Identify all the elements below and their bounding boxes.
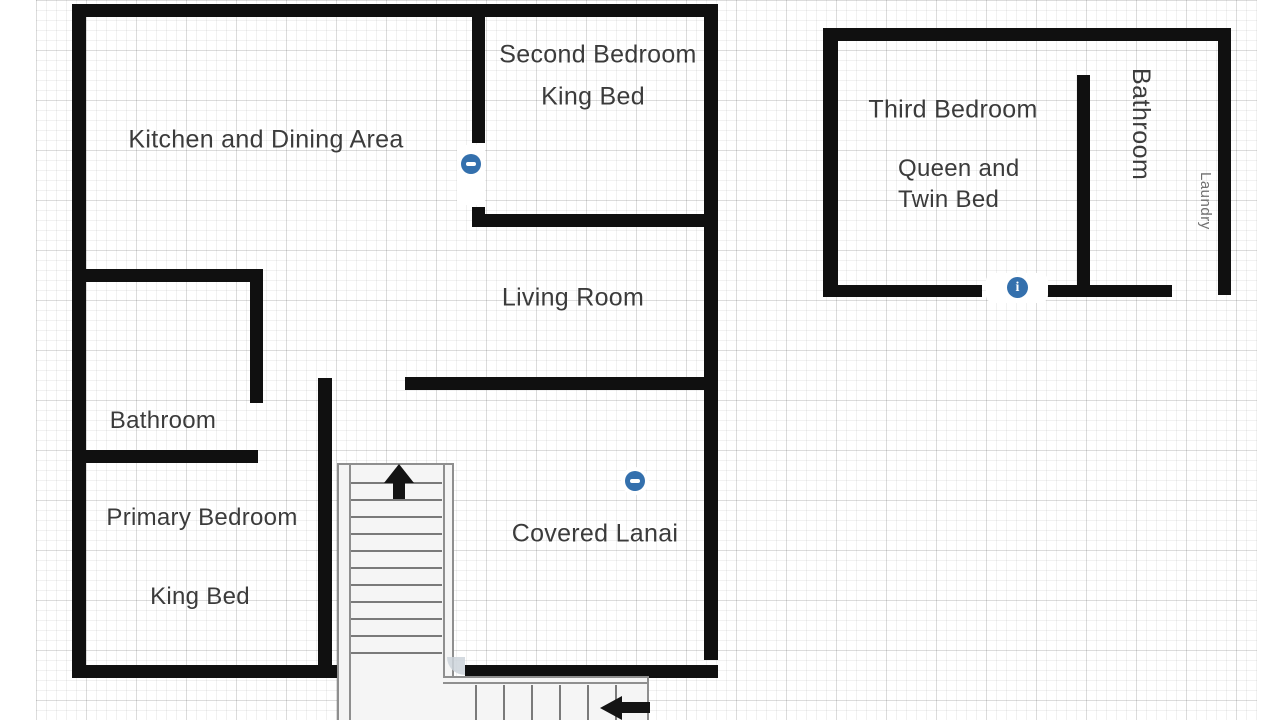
wall (823, 28, 838, 297)
wall (72, 665, 340, 678)
wall (704, 4, 718, 660)
room-label-third-bedroom-bed: Queen and Twin Bed (898, 153, 1019, 215)
wall (1077, 75, 1090, 297)
marker-glyph (630, 479, 640, 483)
blue-marker-icon[interactable] (625, 471, 645, 491)
room-label-living-room: Living Room (502, 284, 644, 313)
wall (472, 214, 718, 227)
wall (823, 28, 1231, 41)
wall (72, 4, 86, 678)
blue-marker-icon[interactable] (461, 154, 481, 174)
info-icon[interactable]: i (1007, 277, 1028, 298)
wall (823, 285, 982, 297)
wall (250, 282, 263, 403)
room-label-second-bedroom: Second Bedroom (499, 41, 696, 70)
wall (72, 4, 718, 17)
wall (405, 377, 718, 390)
room-label-primary-bedroom: Primary Bedroom (106, 504, 297, 532)
wall (86, 450, 258, 463)
wall (318, 378, 332, 678)
room-label-second-bedroom-bed: King Bed (541, 83, 645, 112)
graph-paper-grid (36, 0, 1257, 720)
room-label-primary-bedroom-bed: King Bed (150, 583, 250, 611)
staircase-up (337, 463, 454, 720)
room-label-laundry: Laundry (1197, 172, 1214, 230)
room-label-third-bedroom: Third Bedroom (868, 96, 1037, 125)
left-arrow-icon (600, 696, 622, 720)
room-label-covered-lanai: Covered Lanai (512, 520, 679, 549)
floorplan-canvas: Kitchen and Dining Area Second Bedroom K… (0, 0, 1280, 720)
wall (1218, 28, 1231, 295)
marker-glyph (466, 162, 476, 166)
wall (472, 16, 485, 143)
room-label-bathroom-left: Bathroom (110, 407, 216, 435)
wall (86, 269, 263, 282)
stair-rail (443, 682, 647, 684)
room-label-bathroom-right: Bathroom (1126, 68, 1155, 180)
room-label-kitchen: Kitchen and Dining Area (128, 126, 403, 155)
left-arrow-icon (620, 702, 650, 713)
up-arrow-icon (393, 482, 405, 499)
wall (1035, 285, 1172, 297)
up-arrow-icon (384, 464, 414, 483)
